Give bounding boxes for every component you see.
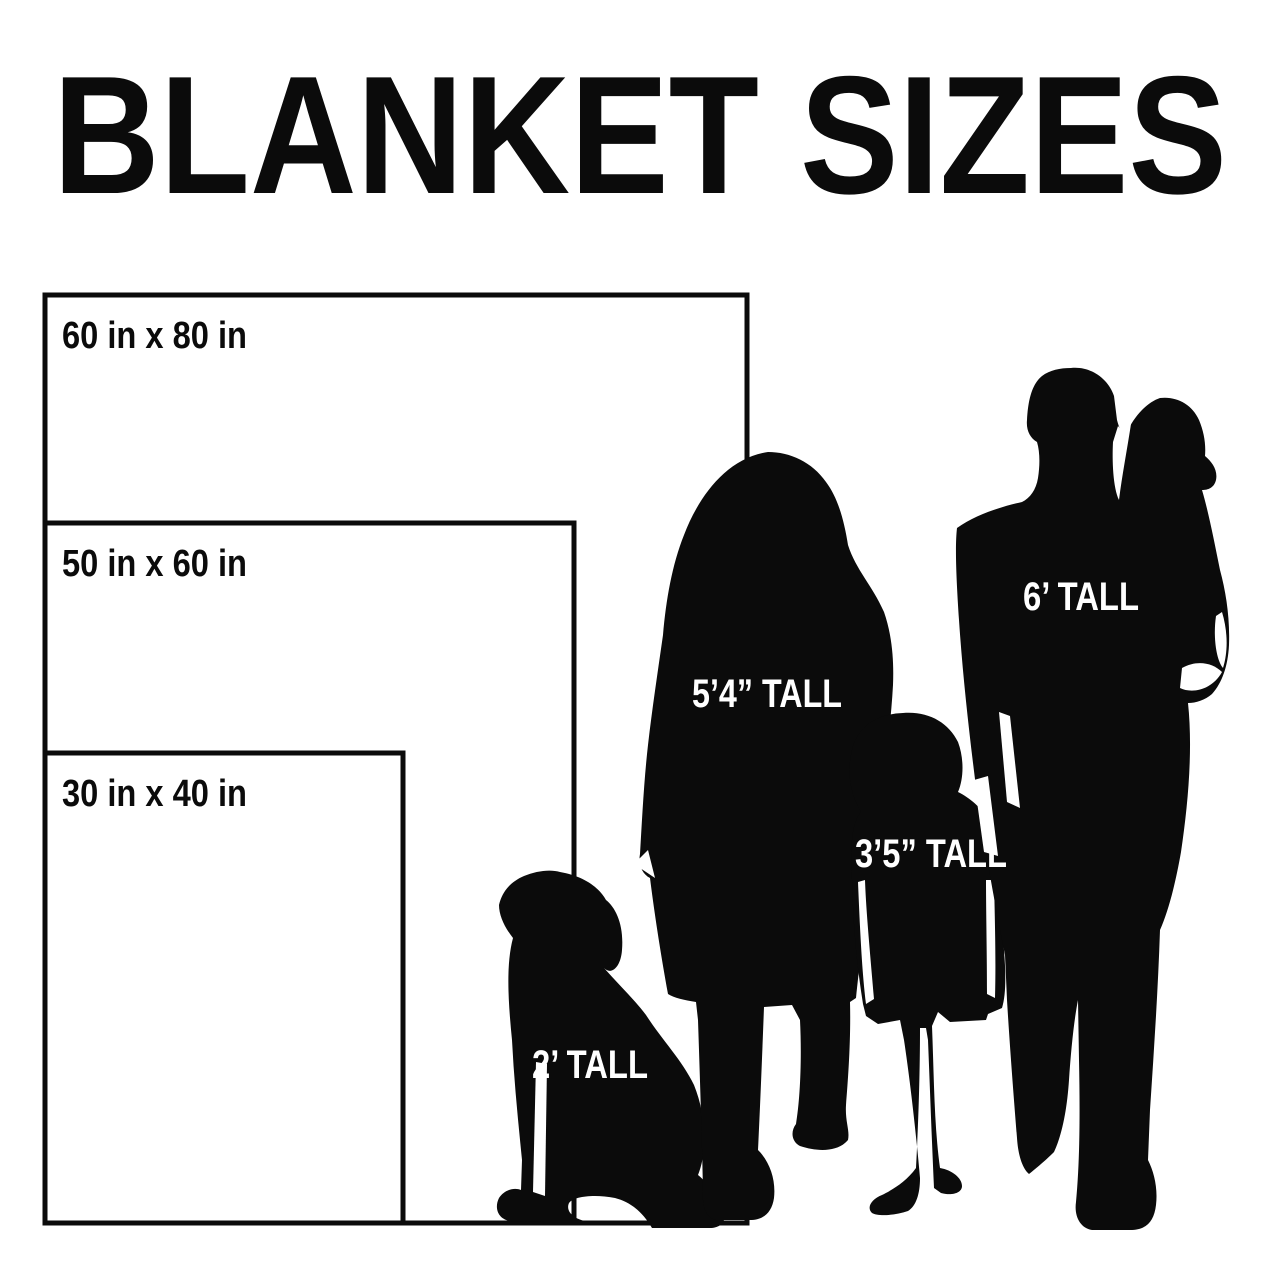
blanket-label-50x60: 50 in x 60 in (62, 543, 247, 585)
blanket-rect-30x40 (45, 753, 403, 1223)
woman-height-label: 5’4” TALL (692, 672, 842, 716)
infographic-svg: BLANKET SIZES 60 in x 80 in 50 in x 60 i… (0, 0, 1280, 1280)
girl-height-label: 3’5” TALL (855, 832, 1007, 876)
blanket-size-infographic: BLANKET SIZES 60 in x 80 in 50 in x 60 i… (0, 0, 1280, 1280)
blanket-label-30x40: 30 in x 40 in (62, 773, 247, 815)
man-and-toddler-silhouette (956, 368, 1229, 1230)
man-height-label: 6’ TALL (1023, 575, 1139, 619)
blanket-label-60x80: 60 in x 80 in (62, 315, 247, 357)
dog-height-label: 2’ TALL (532, 1043, 648, 1087)
page-title: BLANKET SIZES (53, 41, 1227, 229)
